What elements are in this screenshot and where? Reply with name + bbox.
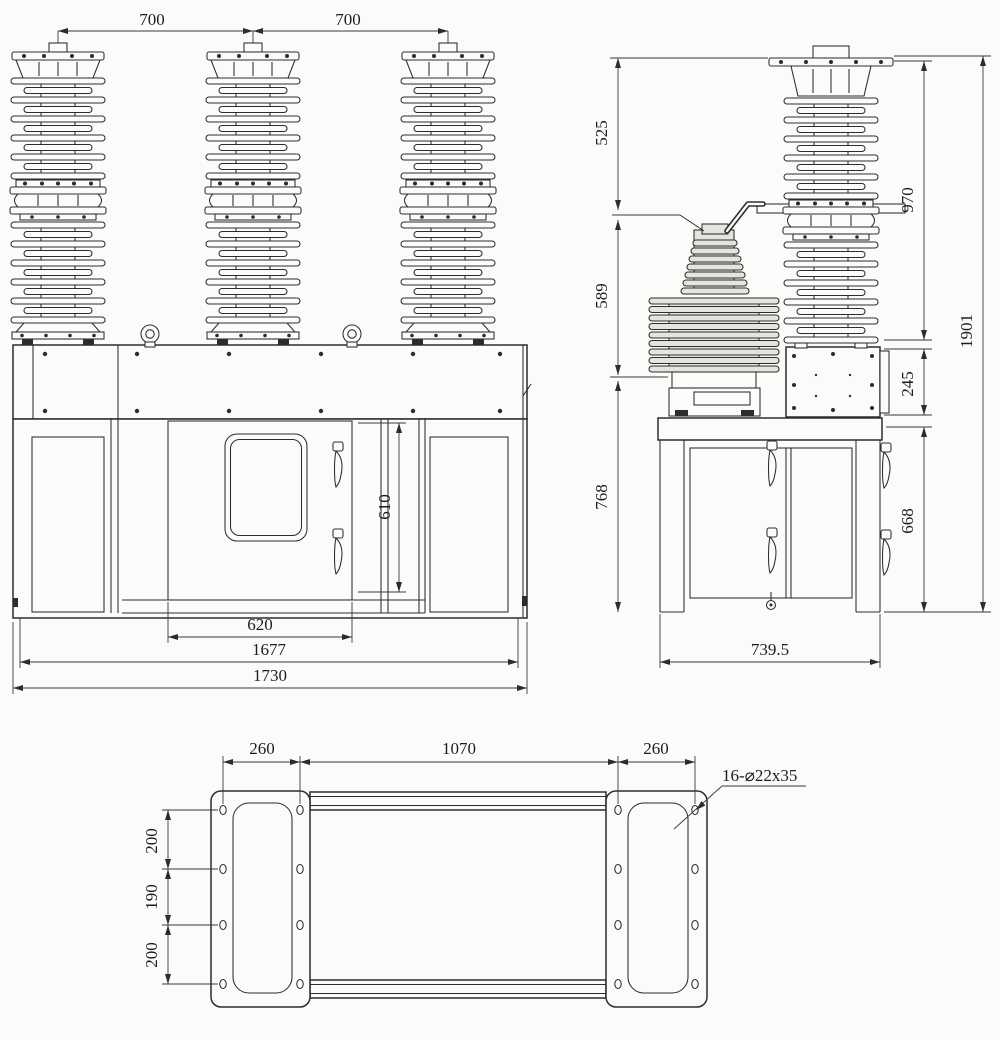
dim-label-mech-box-height: 245 xyxy=(898,371,917,397)
dim-label-hole-row-mid: 190 xyxy=(142,884,161,910)
door-window-inner xyxy=(231,440,302,536)
mounting-hole xyxy=(220,921,226,930)
mounting-hole xyxy=(220,865,226,874)
bottom-view: 260 1070 260 200 190 200 16-⌀22x35 xyxy=(142,739,806,1007)
base-slot-right xyxy=(628,803,688,993)
dim-label-hole-row-top: 200 xyxy=(142,828,161,854)
conductor-arm xyxy=(612,204,763,231)
mounting-hole xyxy=(692,865,698,874)
drawing-sheet: 700 700 xyxy=(0,0,1000,1040)
pole-column-left xyxy=(10,43,106,345)
dim-label-door-width: 620 xyxy=(247,615,273,634)
side-dim-depth: 739.5 xyxy=(660,614,880,668)
base-rails xyxy=(310,792,606,998)
current-transformer xyxy=(649,224,779,416)
front-door-handle-edge-lower xyxy=(881,530,891,575)
hinge-mark-left xyxy=(13,598,18,607)
dim-label-inner-width: 1677 xyxy=(252,640,287,659)
dim-label-cabinet-height: 668 xyxy=(898,508,917,534)
dim-label-pole-pitch-left: 700 xyxy=(139,10,165,29)
dim-label-cap-to-terminal: 525 xyxy=(592,120,611,146)
lifting-eyebolt-right xyxy=(343,325,361,347)
dim-label-center-hole-span: 1070 xyxy=(442,739,476,758)
base-plate-right xyxy=(606,791,707,1007)
pole-column-right xyxy=(400,43,496,345)
mounting-hole xyxy=(220,980,226,989)
front-view: 700 700 xyxy=(10,10,531,694)
hinge-mark-right xyxy=(522,596,527,606)
mounting-hole xyxy=(692,921,698,930)
hole-note-label: 16-⌀22x35 xyxy=(722,766,797,785)
right-end-panel xyxy=(430,437,508,612)
mounting-hole xyxy=(692,980,698,989)
mounting-hole xyxy=(297,980,303,989)
bottom-dim-left-chain: 200 190 200 xyxy=(142,810,218,984)
ct-base-step xyxy=(672,372,756,388)
side-view: 525 589 768 970 245 668 1901 xyxy=(592,46,991,668)
cabinet-top-band xyxy=(13,345,531,419)
technical-drawing: 700 700 xyxy=(0,0,1000,1040)
mounting-hole xyxy=(615,806,621,815)
mounting-hole xyxy=(297,806,303,815)
dim-label-bushing-height: 970 xyxy=(898,187,917,213)
dim-label-overall-width: 1730 xyxy=(253,666,287,685)
dim-label-left-hole-span: 260 xyxy=(249,739,275,758)
mounting-hole xyxy=(297,865,303,874)
left-end-panel xyxy=(32,437,104,612)
dim-label-pole-pitch-right: 700 xyxy=(335,10,361,29)
mechanism-box xyxy=(786,347,889,417)
dim-label-base-depth: 739.5 xyxy=(751,640,789,659)
mounting-hole xyxy=(615,921,621,930)
mounting-hole xyxy=(297,921,303,930)
mounting-hole xyxy=(615,865,621,874)
dim-label-overall-height: 1901 xyxy=(957,314,976,348)
side-frame xyxy=(658,418,891,612)
pole-column-center xyxy=(205,43,301,345)
mounting-hole xyxy=(615,980,621,989)
cabinet-body xyxy=(13,419,527,618)
base-slot-left xyxy=(233,803,292,993)
dim-label-hole-row-bottom: 200 xyxy=(142,942,161,968)
side-dim-right-chain: 970 245 668 1901 xyxy=(884,56,991,612)
dim-label-right-hole-span: 260 xyxy=(643,739,669,758)
base-plate-left xyxy=(211,791,310,1007)
dim-label-frame-height: 768 xyxy=(592,484,611,510)
lifting-eyebolt-left xyxy=(141,325,159,347)
dim-label-terminal-to-ct: 589 xyxy=(592,283,611,309)
front-door-handle-edge-upper xyxy=(881,443,891,488)
mounting-hole xyxy=(220,806,226,815)
dim-label-door-height: 610 xyxy=(375,494,394,520)
